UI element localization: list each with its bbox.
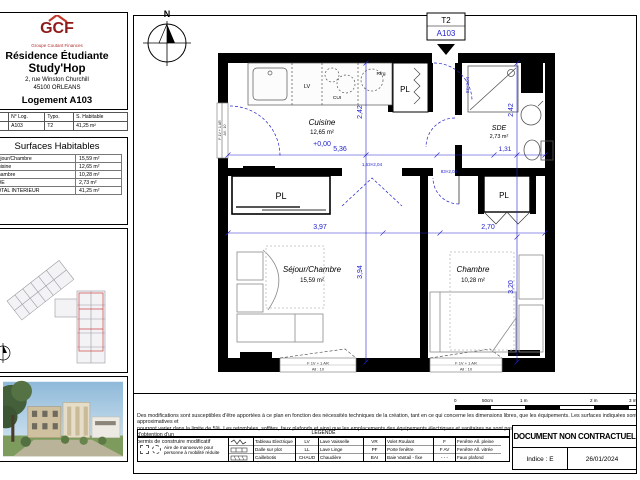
scale-bar: 0 50cm 1 m 2 m 3 m (452, 398, 638, 412)
unit-info-value-row: 1 A103 T2 41,25 m² (0, 122, 128, 131)
unit-info-table: Niv. N° Log. Typo. S. Habitable 1 A103 T… (0, 112, 128, 131)
scale-bar-blocks (455, 405, 637, 410)
room-sejour: Séjour/Chambre (283, 265, 342, 274)
dim-sejour-height: 3,94 (357, 265, 364, 279)
legend-abbr: CHAUD (296, 454, 318, 461)
disclaimer-line: Des modifications sont susceptibles d'êt… (137, 413, 637, 426)
legend-label: Porte fenêtre (386, 446, 433, 454)
room-sejour-area: 15,59 m² (300, 278, 324, 284)
closet-label: PL (275, 191, 286, 201)
legend-label: Chaudière (319, 454, 363, 461)
surfaces-table: Séjour/Chambre15,59 m² Cuisine12,65 m² C… (0, 154, 122, 195)
radiator (240, 352, 272, 358)
dim-cuisine-height: 2,42 (357, 105, 364, 119)
legend-label: Dalle sur plot (254, 446, 295, 454)
room-cuisine: Cuisine (309, 118, 336, 127)
washbasin-icon (521, 105, 541, 125)
doc-non-contractuel: DOCUMENT NON CONTRACTUEL (513, 426, 636, 448)
val-typo: T2 (45, 122, 74, 131)
legend-label: Fenêtre All. pleine (456, 438, 501, 446)
dim-sde-height: 2,42 (508, 103, 515, 117)
col-log: N° Log. (9, 113, 45, 122)
legend-abbr-col2: VR PF BAI (364, 438, 386, 461)
table-row: Séjour/Chambre15,59 m² (0, 155, 122, 163)
window-sill: All : 10 (223, 125, 227, 136)
unit-type: T2 (441, 16, 451, 25)
plan-sheet: GCF Groupe Coutant Finances Résidence Ét… (0, 0, 640, 480)
window-codes: F 1V + 1 AR All : 10 F 1V + 1 AR All : 1… (218, 120, 477, 372)
window-sill: All : 10 (460, 367, 473, 372)
table-row: SDE2,73 m² (0, 179, 122, 187)
door-code-double: 1,63×2,04 (362, 162, 383, 167)
table-row: Chambre10,28 m² (0, 171, 122, 179)
legend-symbol-icons (229, 438, 254, 461)
legend-label: Tableau Electrique (254, 438, 295, 446)
room-sde-area: 2,73 m² (490, 134, 509, 140)
residence-name: Study'Hop (0, 63, 127, 75)
doc-indice: Indice : E (513, 448, 568, 470)
legend-abbr: VR (364, 438, 385, 446)
title-block: GCF Groupe Coutant Finances Résidence Ét… (0, 12, 128, 110)
legend-abbr: LL (296, 446, 318, 454)
scale-tick-label: 3 m (629, 398, 637, 403)
north-arrow-icon: N (143, 9, 191, 66)
legend-label: Volet Roulant (386, 438, 433, 446)
document-status-box: DOCUMENT NON CONTRACTUEL Indice : E 26/0… (512, 425, 637, 470)
doc-date: 26/01/2024 (568, 448, 636, 470)
kitchen-counter (248, 63, 392, 105)
bed (430, 292, 516, 352)
residence-title: Résidence Étudiante (0, 50, 127, 62)
legend-label-col2: Volet Roulant Porte fenêtre Baie Vantail… (386, 438, 434, 461)
north-label: N (164, 9, 171, 19)
legend-label: Caillebotis (254, 454, 295, 461)
room-chambre: Chambre (457, 265, 490, 274)
legend-abbr: LV (296, 438, 318, 446)
scale-tick-label: 1 m (520, 398, 528, 403)
radiator (508, 350, 540, 356)
window-code: F 1V + 1 AR (307, 361, 329, 366)
surface-value: 10,28 m² (76, 171, 122, 179)
floor-plan: N T2 A103 (130, 5, 640, 405)
surface-label: Chambre (0, 171, 76, 179)
legend-abbr: PF (364, 446, 385, 454)
dim-chambre-height: 3,20 (508, 280, 515, 294)
window-code: F 1V + 1 AR (455, 361, 477, 366)
table-row: TOTAL INTERIEUR41,25 m² (0, 187, 122, 195)
address-line2: 45100 ORLEANS (0, 85, 127, 91)
legend-label: Faux plafond (456, 454, 501, 461)
unit-number: A103 (437, 29, 456, 38)
legend-abbr-col3: F F AV - - - (434, 438, 456, 461)
unit-info-header-row: Niv. N° Log. Typo. S. Habitable (0, 113, 128, 122)
pmr-circle-icon (152, 445, 161, 454)
radiator (243, 166, 275, 172)
surface-value: 41,25 m² (76, 187, 122, 195)
legend-label: Fenêtre All. vitrée (456, 446, 501, 454)
legend-title: LEGENDE (137, 429, 510, 437)
gcf-logo: GCF Groupe Coutant Finances (0, 15, 127, 48)
surfaces-title: Surfaces Habitables (0, 138, 127, 154)
legend-abbr: F (434, 438, 455, 446)
dishwasher-label: LV (304, 84, 311, 90)
level-label: +0,00 (313, 141, 331, 148)
furniture (237, 246, 543, 352)
closet-label: PL (400, 85, 410, 94)
col-typo: Typo. (45, 113, 74, 122)
val-shab: 41,25 m² (74, 122, 128, 131)
legend-label: Lave Vaisselle (319, 438, 363, 446)
legend-abbr-col1: LV LL CHAUD (296, 438, 319, 461)
surface-label: SDE (0, 179, 76, 187)
chambre-door-swing (433, 178, 459, 204)
window-sill: All : 10 (312, 367, 325, 372)
residence-photo (0, 376, 128, 462)
legend-abbr: BAI (364, 454, 385, 461)
sde-door-swing (426, 118, 455, 147)
surface-value: 12,65 m² (76, 163, 122, 171)
scale-tick-label: 50cm (482, 398, 493, 403)
room-chambre-area: 10,28 m² (461, 278, 485, 284)
legend-pmr-label: Aire de manoeuvre pour personne à mobili… (164, 445, 226, 455)
legend-abbr: F AV (434, 446, 455, 454)
caillebotis-icon (229, 454, 253, 461)
gcf-acronym: GCF (40, 20, 74, 37)
lot-title: Logement A103 (0, 95, 127, 106)
dalle-sur-plot-icon (229, 446, 253, 454)
legend-label: Baie Vantail - fixe (386, 454, 433, 461)
legend-pmr-cell: Aire de manoeuvre pour personne à mobili… (138, 438, 229, 461)
col-shab: S. Habitable (74, 113, 128, 122)
address-line1: 2, rue Winston Churchill (0, 77, 127, 83)
surfaces-box: Surfaces Habitables Séjour/Chambre15,59 … (0, 137, 128, 225)
surface-label: Cuisine (0, 163, 76, 171)
sejour-double-door (342, 178, 402, 206)
surface-label: Séjour/Chambre (0, 155, 76, 163)
closet-label: PL (499, 191, 509, 200)
fridge-label: Rfrg (376, 71, 385, 77)
surface-label: TOTAL INTERIEUR (0, 187, 76, 195)
room-sde: SDE (492, 125, 507, 132)
legend-symbol-labels: Tableau Electrique Dalle sur plot Caille… (254, 438, 296, 461)
cooker-label: CUI (333, 95, 341, 101)
val-niv: 1 (0, 122, 9, 131)
col-niv: Niv. (0, 113, 9, 122)
room-cuisine-area: 12,65 m² (310, 130, 334, 136)
legend-table: Aire de manoeuvre pour personne à mobili… (137, 437, 510, 462)
site-north-icon (0, 343, 10, 363)
site-key-plan (0, 228, 128, 373)
window-code: F 1V + 1 AR (218, 120, 222, 140)
pmr-square-icon (140, 445, 149, 454)
dim-chambre-width: 2,70 (481, 224, 495, 231)
site-plan-drawing (0, 229, 127, 372)
gcf-subtitle: Groupe Coutant Finances (0, 43, 127, 48)
val-log: A103 (9, 122, 45, 131)
dim-cuisine-width: 5,36 (333, 146, 347, 153)
scale-tick-label: 2 m (590, 398, 598, 403)
kitchen-window-swing (230, 106, 280, 156)
table-row: Cuisine12,65 m² (0, 163, 122, 171)
legend-abbr: - - - (434, 454, 455, 461)
dim-sejour-width: 3,97 (313, 224, 327, 231)
photo-rendering (3, 380, 123, 458)
entry-marker-icon (437, 44, 455, 55)
scale-tick-label: 0 (454, 398, 457, 403)
unit-tag: T2 A103 (427, 13, 465, 55)
door-code-entry: 93×2,04 (465, 76, 470, 93)
legend-label: Lave Linge (319, 446, 363, 454)
gcf-logo-icon: GCF (27, 15, 87, 39)
electrical-panel-icon (229, 438, 253, 446)
legend-label-col3: Fenêtre All. pleine Fenêtre All. vitrée … (456, 438, 501, 461)
legend-label-col1: Lave Vaisselle Lave Linge Chaudière (319, 438, 364, 461)
windows (217, 103, 502, 372)
surface-value: 15,59 m² (76, 155, 122, 163)
dim-sde-width: 1,31 (499, 146, 512, 153)
surface-value: 2,73 m² (76, 179, 122, 187)
door-code-chambre: 83×2,04 (441, 169, 458, 174)
